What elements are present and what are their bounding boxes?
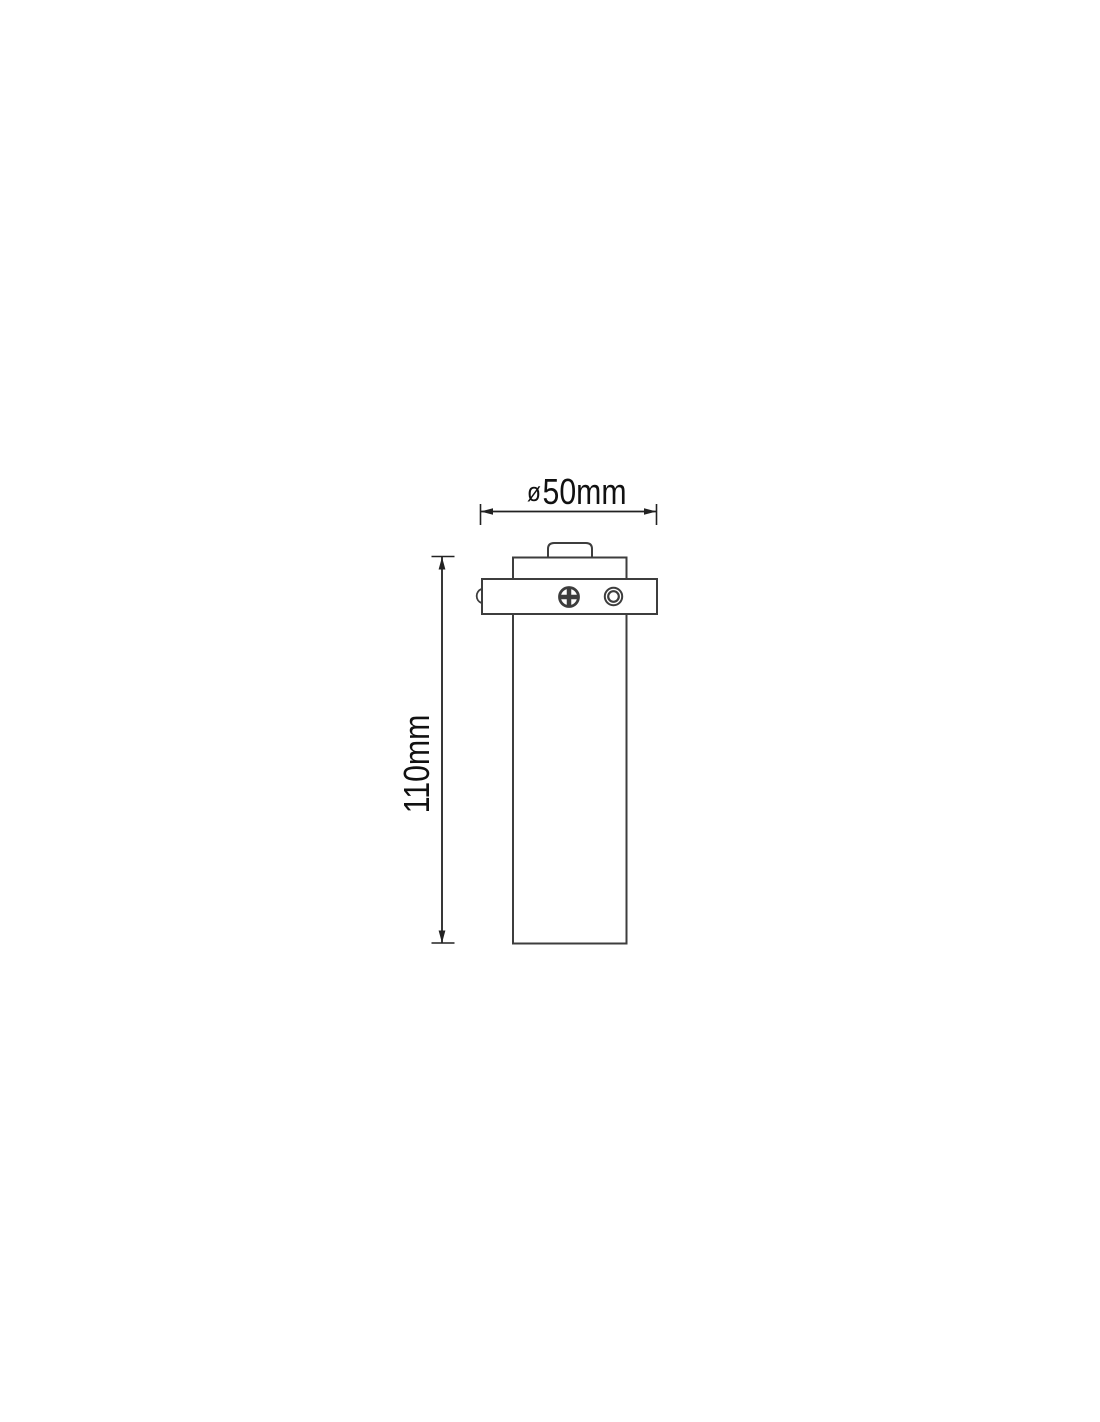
- drawing-canvas: ø50mm 110mm: [0, 0, 1100, 1422]
- width-dimension: [481, 504, 657, 525]
- plate-side-bump: [477, 589, 482, 603]
- height-dim-arrow-top: [439, 557, 446, 570]
- phillips-screw-icon: [560, 588, 579, 607]
- body-upper-section: [513, 558, 627, 580]
- plate-hole-inner: [608, 591, 619, 602]
- width-dim-arrow-right: [644, 508, 657, 515]
- fixture-outline: [477, 543, 657, 944]
- width-dim-arrow-left: [481, 508, 494, 515]
- height-dim-arrow-bottom: [439, 931, 446, 944]
- fixture-line-drawing: [0, 0, 1100, 1422]
- height-dimension: [432, 557, 455, 944]
- body-cylinder: [513, 614, 627, 944]
- plate-hole-icon: [605, 588, 622, 605]
- top-mount-stub: [548, 543, 592, 558]
